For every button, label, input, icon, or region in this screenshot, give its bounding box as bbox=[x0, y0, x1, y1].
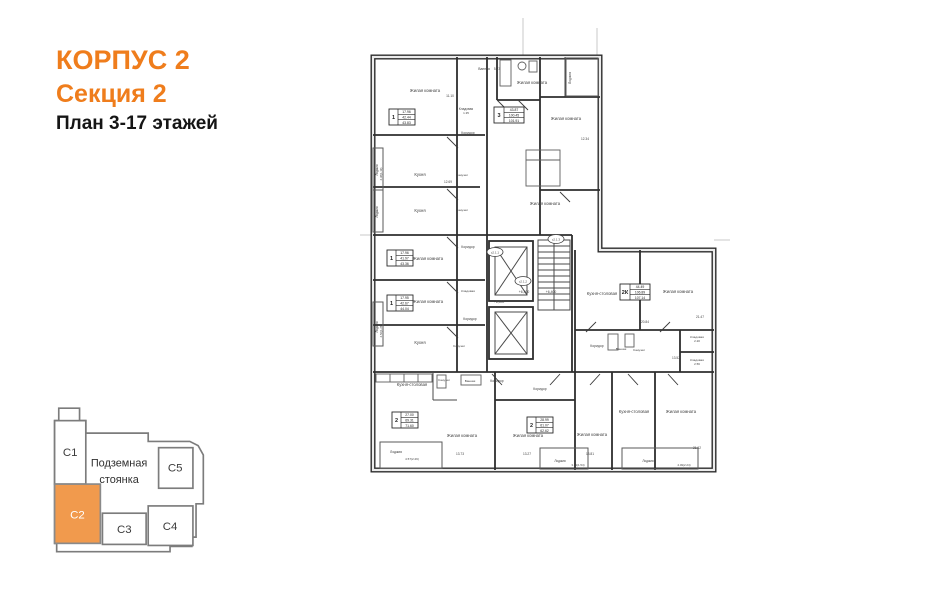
minimap-section-c4-label: С4 bbox=[163, 521, 178, 533]
minimap-section-c5[interactable]: С5 bbox=[159, 448, 193, 489]
minimap-section-c3[interactable]: С3 bbox=[102, 513, 146, 544]
room-label: 4.57(2.29) bbox=[405, 457, 419, 461]
room-label: 2.20 bbox=[694, 339, 700, 343]
svg-text:28.99: 28.99 bbox=[540, 418, 549, 422]
door-swings bbox=[447, 100, 678, 385]
room-label: +6,400 bbox=[494, 300, 505, 304]
svg-text:44.04: 44.04 bbox=[400, 307, 409, 311]
apartment-info-box: 228.9961.0762.62 bbox=[527, 417, 553, 433]
room-label: Жилая комната bbox=[513, 433, 544, 438]
room-label: 12.69 bbox=[444, 180, 452, 184]
svg-text:100.45: 100.45 bbox=[509, 114, 519, 118]
room-label: Жилая комната bbox=[577, 432, 608, 437]
room-label: Лоджия bbox=[642, 459, 654, 463]
loggias bbox=[373, 58, 698, 469]
minimap-section-c2[interactable]: С2 bbox=[55, 484, 101, 543]
minimap-section-c1-label: С1 bbox=[63, 447, 78, 459]
room-label: Жилая комната bbox=[551, 116, 582, 121]
room-label: Жилая комната bbox=[530, 201, 561, 206]
stair-tag: с2.1.2 bbox=[515, 277, 531, 286]
svg-text:с2.1.1: с2.1.1 bbox=[491, 250, 500, 254]
room-label: Кухня-столовая bbox=[397, 382, 427, 387]
svg-text:62.62: 62.62 bbox=[540, 429, 549, 433]
svg-text:106.89: 106.89 bbox=[635, 291, 645, 295]
svg-text:43.83: 43.83 bbox=[402, 121, 411, 125]
room-label: 13.52 bbox=[672, 356, 680, 360]
room-label: Лоджия bbox=[390, 450, 402, 454]
apartment-info-box: 117.9542.6744.04 bbox=[387, 295, 413, 311]
parking-label-line2: стоянка bbox=[99, 474, 139, 486]
apartment-info-box: 2К44.49106.89107.14 bbox=[620, 284, 650, 300]
room-label: 2.56 bbox=[694, 362, 700, 366]
svg-text:2: 2 bbox=[395, 418, 398, 424]
svg-text:3: 3 bbox=[497, 113, 500, 119]
room-label: Кухня-столовая bbox=[587, 291, 617, 296]
room-label: 12.34 bbox=[581, 137, 589, 141]
room-label: Санузел bbox=[456, 173, 468, 177]
svg-text:44.49: 44.49 bbox=[636, 285, 645, 289]
staircase bbox=[538, 240, 570, 310]
svg-text:42.67: 42.67 bbox=[400, 302, 409, 306]
svg-text:с2.1.3: с2.1.3 bbox=[552, 237, 561, 241]
room-label: Коридор bbox=[590, 344, 604, 348]
room-label: Жилая комната bbox=[447, 433, 478, 438]
room-label: Санузел bbox=[453, 344, 465, 348]
svg-text:с2.1.2: с2.1.2 bbox=[519, 279, 528, 283]
room-label: Жилая комната bbox=[663, 289, 694, 294]
svg-text:107.14: 107.14 bbox=[635, 296, 645, 300]
apartment-info-box: 117.9641.9743.36 bbox=[387, 250, 413, 266]
room-label: 2.38(1.19) bbox=[379, 168, 383, 181]
room-label: Жилая комната bbox=[666, 409, 697, 414]
room-label: Жилая комната bbox=[517, 80, 548, 85]
room-label: +6,400 bbox=[519, 290, 530, 294]
svg-text:2К: 2К bbox=[622, 290, 629, 296]
svg-text:43.87: 43.87 bbox=[510, 108, 519, 112]
room-label: +6,400 bbox=[546, 290, 557, 294]
room-label: Жилая комната bbox=[413, 299, 444, 304]
room-label: Коридор bbox=[533, 387, 547, 391]
apartment-info-box: 343.87100.45101.91 bbox=[494, 107, 524, 123]
room-label: Лоджия bbox=[554, 459, 566, 463]
minimap-section-c3-label: С3 bbox=[117, 524, 132, 536]
room-label: Санузел bbox=[633, 348, 645, 352]
svg-text:42.44: 42.44 bbox=[402, 116, 411, 120]
svg-text:17.96: 17.96 bbox=[402, 110, 411, 114]
room-label: 5.73 bbox=[494, 67, 500, 71]
svg-text:43.36: 43.36 bbox=[400, 262, 409, 266]
svg-text:1: 1 bbox=[390, 256, 393, 262]
room-label: 2.56(1.28) bbox=[379, 325, 383, 338]
room-label: Ванная bbox=[616, 347, 627, 351]
room-label: Санузел bbox=[438, 378, 450, 382]
room-label: Жилая комната bbox=[413, 256, 444, 261]
svg-text:27.00: 27.00 bbox=[405, 413, 414, 417]
minimap-section-c4[interactable]: С4 bbox=[148, 506, 193, 546]
minimap-section-c2-label: С2 bbox=[70, 509, 85, 521]
svg-text:71.60: 71.60 bbox=[405, 424, 414, 428]
room-label: 3.09(1.54) bbox=[571, 463, 584, 467]
elevator-shaft-2 bbox=[489, 307, 533, 359]
svg-text:41.97: 41.97 bbox=[400, 257, 409, 261]
minimap-svg: С1 С2 С3 С4 С5 Подземная стоянка bbox=[44, 404, 216, 560]
room-label: Ванная bbox=[465, 379, 476, 383]
room-label: Кухня bbox=[414, 208, 425, 213]
room-label: Коридор bbox=[461, 245, 475, 249]
room-label: Кладовая bbox=[461, 289, 475, 293]
room-label: 11.10 bbox=[446, 94, 454, 98]
room-label: Жилая комната bbox=[410, 88, 441, 93]
apartment-info-box: 117.9642.4443.83 bbox=[389, 109, 415, 125]
room-label: Ванная bbox=[478, 67, 490, 71]
apartment-info-box: 227.0069.3171.60 bbox=[392, 412, 418, 428]
room-label: 21.02 bbox=[693, 446, 701, 450]
room-label: 13.73 bbox=[456, 452, 464, 456]
room-label: Кухня bbox=[414, 172, 425, 177]
room-label: Кухня-столовая bbox=[619, 409, 649, 414]
svg-text:1: 1 bbox=[390, 301, 393, 307]
parking-label-line1: Подземная bbox=[91, 457, 148, 469]
svg-text:17.95: 17.95 bbox=[400, 296, 409, 300]
room-label: Коридор bbox=[463, 317, 477, 321]
room-label: 1.35 bbox=[463, 111, 469, 115]
svg-text:17.96: 17.96 bbox=[400, 251, 409, 255]
room-label: Коридор bbox=[461, 131, 475, 135]
room-label: 13.27 bbox=[523, 452, 531, 456]
minimap-section-c1[interactable]: С1 bbox=[55, 421, 86, 484]
svg-text:1: 1 bbox=[392, 115, 395, 121]
room-label: Санузел bbox=[456, 208, 468, 212]
minimap-section-c5-label: С5 bbox=[168, 463, 183, 475]
axis-lines bbox=[360, 18, 730, 240]
room-label: Коридор bbox=[490, 379, 504, 383]
room-label: Лоджия bbox=[375, 206, 379, 218]
svg-text:61.07: 61.07 bbox=[540, 424, 549, 428]
stair-tag: с2.1.3 bbox=[548, 235, 564, 244]
room-label: 13.81 bbox=[586, 452, 594, 456]
room-label: Лоджия bbox=[568, 72, 572, 84]
stair-tag: с2.1.1 bbox=[487, 248, 503, 257]
room-label: 21.47 bbox=[696, 315, 704, 319]
room-label: 4.49(2.24) bbox=[677, 463, 690, 467]
svg-text:2: 2 bbox=[530, 423, 533, 429]
room-label: 20.84 bbox=[641, 320, 649, 324]
room-label: Кухня bbox=[414, 340, 425, 345]
svg-text:69.31: 69.31 bbox=[405, 419, 414, 423]
svg-text:101.91: 101.91 bbox=[509, 119, 519, 123]
